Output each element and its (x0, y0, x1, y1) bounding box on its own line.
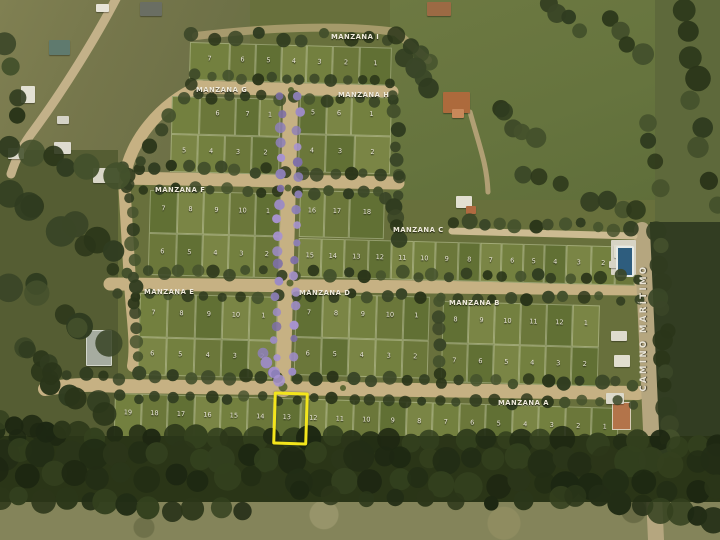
lot-number: 2 (403, 352, 427, 361)
building-roof (611, 331, 627, 341)
lot-number: 4 (520, 358, 544, 367)
lot-number: 6 (468, 356, 492, 365)
lot-number: 4 (195, 351, 220, 360)
label-manzana-a: MANZANA A (498, 399, 549, 407)
lot-manzana-h-4: 4 (298, 134, 326, 173)
lot-number: 3 (307, 57, 331, 66)
lot-manzana-c-4: 4 (544, 244, 567, 284)
lot-manzana-c-3: 3 (566, 245, 592, 285)
lot-number: 3 (225, 148, 250, 157)
lot-manzana-e-10: 10 (222, 295, 250, 340)
lot-manzana-h-1: 1 (351, 96, 392, 136)
block-manzana-f: 78910165432 (148, 190, 281, 278)
clay-court (612, 402, 631, 430)
lot-number: 5 (256, 56, 280, 65)
lot-number: 7 (296, 308, 321, 317)
lot-number: 7 (190, 54, 228, 63)
lot-number: 12 (547, 318, 571, 327)
lot-number: 17 (325, 207, 348, 216)
lot-manzana-f-8: 8 (177, 191, 204, 235)
lot-number: 7 (442, 356, 466, 365)
aerial-photo: 1918171615141312111098765432189101112176… (0, 0, 720, 540)
lot-manzana-b-2: 2 (571, 347, 599, 387)
lot-number: 8 (168, 308, 194, 317)
lot-manzana-e-9: 9 (195, 295, 223, 340)
building-roof (452, 109, 464, 118)
lot-number: 12 (369, 252, 390, 261)
lot-number: 4 (198, 147, 223, 156)
building-roof (54, 142, 71, 154)
lot-number: 10 (495, 316, 519, 325)
lot-manzana-b-5: 5 (493, 344, 520, 384)
lot-number: 15 (221, 411, 246, 420)
label-manzana-d: MANZANA D (299, 289, 350, 297)
lot-number: 2 (252, 148, 278, 157)
lot-manzana-c-8: 8 (458, 242, 481, 282)
lot-number: 1 (260, 110, 279, 118)
lot-manzana-c-18: 18 (349, 191, 385, 239)
building-roof (57, 116, 69, 124)
lot-manzana-c-11: 11 (391, 240, 414, 280)
path-topright-field (470, 112, 488, 192)
block-manzana-h: 561432 (298, 95, 392, 174)
lot-number: 5 (300, 108, 325, 117)
lot-manzana-e-5: 5 (166, 338, 195, 377)
building-roof (8, 148, 24, 159)
lot-manzana-i-2: 2 (332, 46, 360, 85)
lot-number: 19 (115, 408, 140, 417)
block-manzana-e: 78910165432 (138, 293, 278, 379)
lot-manzana-c-13: 13 (344, 239, 369, 279)
lot-manzana-g-2: 2 (251, 136, 280, 175)
lot-number: 9 (350, 309, 375, 318)
building-roof (21, 86, 35, 103)
road-central (283, 88, 291, 386)
lot-number: 16 (300, 206, 323, 215)
lot-manzana-i-1: 1 (359, 47, 392, 86)
lot-manzana-b-3: 3 (545, 346, 572, 386)
lot-manzana-b-12: 12 (546, 304, 573, 347)
lot-number: 2 (255, 250, 278, 259)
lot-manzana-i-4: 4 (281, 45, 307, 84)
lot-manzana-d-8: 8 (322, 294, 350, 339)
lot-number: 14 (248, 412, 272, 421)
lot-number: 10 (230, 206, 254, 215)
lot-number: 9 (204, 206, 228, 215)
block-manzana-i: 7654321 (189, 42, 392, 86)
lot-number: 7 (236, 110, 258, 119)
lot-number: 8 (443, 315, 467, 324)
lot-manzana-c-12: 12 (368, 240, 392, 280)
lot-number: 4 (282, 57, 305, 66)
lot-manzana-f-3: 3 (228, 235, 255, 278)
building-roof (606, 393, 624, 404)
lot-manzana-f-2: 2 (254, 236, 280, 279)
lot-number: 6 (230, 55, 254, 64)
lot-number: 5 (171, 146, 196, 155)
lot-manzana-d-7: 7 (295, 293, 323, 338)
building-roof (49, 40, 70, 55)
lot-manzana-e-2: 2 (248, 340, 277, 379)
lot-manzana-a-16: 16 (194, 395, 221, 441)
lot-manzana-b-10: 10 (494, 302, 521, 345)
lot-manzana-d-3: 3 (375, 339, 403, 378)
highlighted-lot-outline (272, 391, 309, 445)
lot-manzana-c-9: 9 (435, 242, 459, 282)
lot-manzana-g-6: 6 (199, 97, 236, 136)
label-manzana-e: MANZANA E (144, 288, 194, 296)
label-manzana-h: MANZANA H (338, 91, 389, 99)
lot-manzana-e-3: 3 (221, 339, 249, 378)
lot-number: 2 (572, 359, 597, 368)
lot-manzana-h-3: 3 (325, 135, 355, 174)
lot-number: 4 (545, 257, 565, 266)
lot-manzana-c-14: 14 (321, 239, 345, 279)
lot-manzana-g-3: 3 (224, 135, 252, 174)
lot-manzana-g-4: 4 (197, 135, 225, 174)
lot-number: 18 (142, 409, 166, 418)
lot-number: 16 (195, 410, 219, 419)
label-manzana-g: MANZANA G (196, 86, 247, 94)
lot-manzana-g (171, 96, 200, 135)
label-manzana-b: MANZANA B (449, 299, 500, 307)
lot-manzana-h-6: 6 (326, 96, 352, 136)
lot-number: 11 (521, 317, 545, 326)
lot-manzana-b-11: 11 (520, 303, 547, 346)
lot-number: 8 (178, 205, 202, 214)
lot-manzana-c-16: 16 (299, 190, 325, 238)
lot-number: 5 (177, 248, 201, 257)
lot-number: 11 (392, 253, 412, 262)
lot-manzana-h-5: 5 (299, 95, 327, 135)
lot-number: 3 (546, 358, 570, 367)
lot-manzana-f-5: 5 (176, 234, 203, 277)
lot-number: 1 (573, 318, 598, 327)
lot-manzana-b-4: 4 (519, 345, 546, 385)
building-roof (466, 206, 476, 214)
lot-number: 3 (222, 351, 247, 360)
lot-manzana-e-4: 4 (194, 339, 222, 378)
lot-number: 4 (349, 351, 374, 360)
lot-number: 18 (350, 207, 383, 216)
lot-number: 13 (345, 252, 367, 261)
lot-number: 9 (196, 309, 221, 318)
lot-number: 1 (250, 311, 276, 320)
lot-number: 10 (354, 415, 378, 424)
lot-manzana-f-10: 10 (229, 192, 256, 236)
road-mid-upper (122, 178, 398, 183)
lot-manzana-c-6: 6 (501, 243, 524, 283)
lot-number: 3 (376, 351, 401, 360)
lot-number: 6 (139, 349, 165, 358)
label-manzana-f: MANZANA F (155, 186, 205, 194)
lot-manzana-a-18: 18 (141, 394, 168, 440)
lot-manzana-a-19: 19 (114, 393, 142, 439)
block-manzana-g: 6715432 (170, 96, 281, 175)
lot-manzana-d-5: 5 (321, 338, 349, 377)
lot-number: 3 (326, 147, 353, 156)
building-roof (96, 4, 109, 12)
lot-manzana-b-6: 6 (467, 344, 494, 384)
lot-manzana-d-2: 2 (402, 340, 429, 379)
lot-number: 11 (327, 414, 352, 423)
lot-manzana-c-17: 17 (324, 191, 350, 239)
lot-manzana-d-1: 1 (403, 296, 430, 341)
lot-number: 5 (167, 350, 193, 359)
lot-manzana-b-8: 8 (442, 301, 469, 344)
lot-number: 5 (322, 350, 347, 359)
lot-manzana-d-9: 9 (349, 295, 377, 340)
lot-number: 2 (566, 421, 590, 430)
lot-number: 5 (524, 256, 543, 264)
lot-manzana-i-7: 7 (189, 42, 230, 81)
lot-number: 10 (414, 254, 434, 263)
lot-manzana-d-6: 6 (294, 337, 322, 376)
lot-manzana-f-7: 7 (149, 190, 178, 234)
lot-manzana-a-17: 17 (167, 395, 195, 441)
lot-manzana-i-5: 5 (255, 44, 282, 83)
lot-number: 2 (249, 352, 275, 361)
lot-number: 6 (327, 108, 350, 117)
lot-manzana-h-2: 2 (354, 135, 391, 174)
lot-manzana-g-7: 7 (235, 98, 260, 137)
lot-number: 1 (404, 311, 428, 320)
lot-manzana-d-10: 10 (376, 295, 404, 340)
lot-number: 5 (494, 357, 518, 366)
lot-number: 1 (352, 109, 390, 118)
lot-number: 8 (323, 308, 348, 317)
lot-manzana-c-15: 15 (298, 238, 322, 278)
lot-manzana-e-8: 8 (167, 294, 196, 339)
lot-manzana-c-5: 5 (523, 244, 545, 284)
lot-manzana-e-7: 7 (139, 293, 168, 338)
lot-number: 8 (407, 417, 431, 426)
lot-number: 4 (299, 146, 324, 155)
lot-manzana-g-1: 1 (259, 98, 281, 137)
lot-manzana-f-6: 6 (148, 233, 177, 276)
lot-number: 7 (433, 418, 458, 427)
block-manzana-d: 78910165432 (294, 293, 430, 379)
block-manzana-b: 891011121765432 (441, 301, 600, 386)
lot-number: 6 (502, 256, 522, 265)
lot-number: 7 (481, 255, 500, 263)
lot-number: 10 (223, 310, 248, 319)
label-manzana-c: MANZANA C (393, 226, 444, 234)
building-roof (140, 2, 162, 16)
lot-number: 5 (486, 419, 511, 428)
lot-number: 2 (355, 148, 389, 157)
lot-number: 15 (299, 251, 320, 260)
road-label-camino-maritimo: CAMINO MARÍTIMO (639, 239, 651, 417)
lot-number: 10 (377, 310, 402, 319)
building-roof (427, 2, 451, 16)
lot-number: 14 (322, 251, 343, 260)
label-manzana-i: MANZANA I (331, 33, 379, 41)
lot-number: 1 (360, 59, 390, 68)
tennis-court (86, 330, 112, 366)
lot-manzana-f-9: 9 (203, 191, 230, 235)
lot-number: 3 (539, 421, 564, 430)
lot-number: 4 (513, 420, 537, 429)
lot-manzana-b-9: 9 (468, 302, 495, 345)
lot-number: 9 (380, 416, 405, 425)
lot-manzana-c-7: 7 (480, 243, 502, 283)
lot-manzana-e-6: 6 (138, 337, 167, 376)
lot-number: 6 (460, 418, 484, 427)
building-roof (93, 168, 119, 183)
tree-band-bottom (0, 436, 720, 502)
lot-number: 6 (200, 109, 234, 118)
lot-number: 1 (256, 207, 279, 216)
lot-number: 7 (140, 308, 166, 317)
lot-number: 7 (150, 204, 176, 213)
lot-manzana-f-4: 4 (202, 234, 229, 277)
swimming-pool (616, 246, 634, 277)
lot-number: 3 (567, 258, 590, 267)
lot-number: 6 (295, 349, 320, 358)
building-roof (614, 355, 630, 367)
lot-number: 6 (149, 247, 175, 256)
lot-manzana-b-1: 1 (572, 305, 600, 348)
lot-manzana-c-10: 10 (413, 241, 436, 281)
lot-manzana-d-4: 4 (348, 338, 376, 377)
lot-number: 17 (168, 410, 193, 419)
lot-manzana-e-1: 1 (249, 296, 278, 341)
lot-manzana-b-7: 7 (441, 343, 468, 383)
lot-number: 9 (436, 254, 457, 263)
lot-number: 4 (203, 248, 227, 257)
lot-manzana-f-1: 1 (255, 193, 281, 237)
lot-number: 9 (469, 316, 493, 325)
lot-number: 2 (333, 58, 358, 67)
lot-manzana-i-3: 3 (306, 45, 333, 84)
lot-number: 3 (229, 249, 253, 258)
lot-manzana-g-5: 5 (170, 134, 198, 173)
lot-number: 8 (459, 255, 479, 264)
lot-manzana-i-6: 6 (229, 43, 256, 82)
